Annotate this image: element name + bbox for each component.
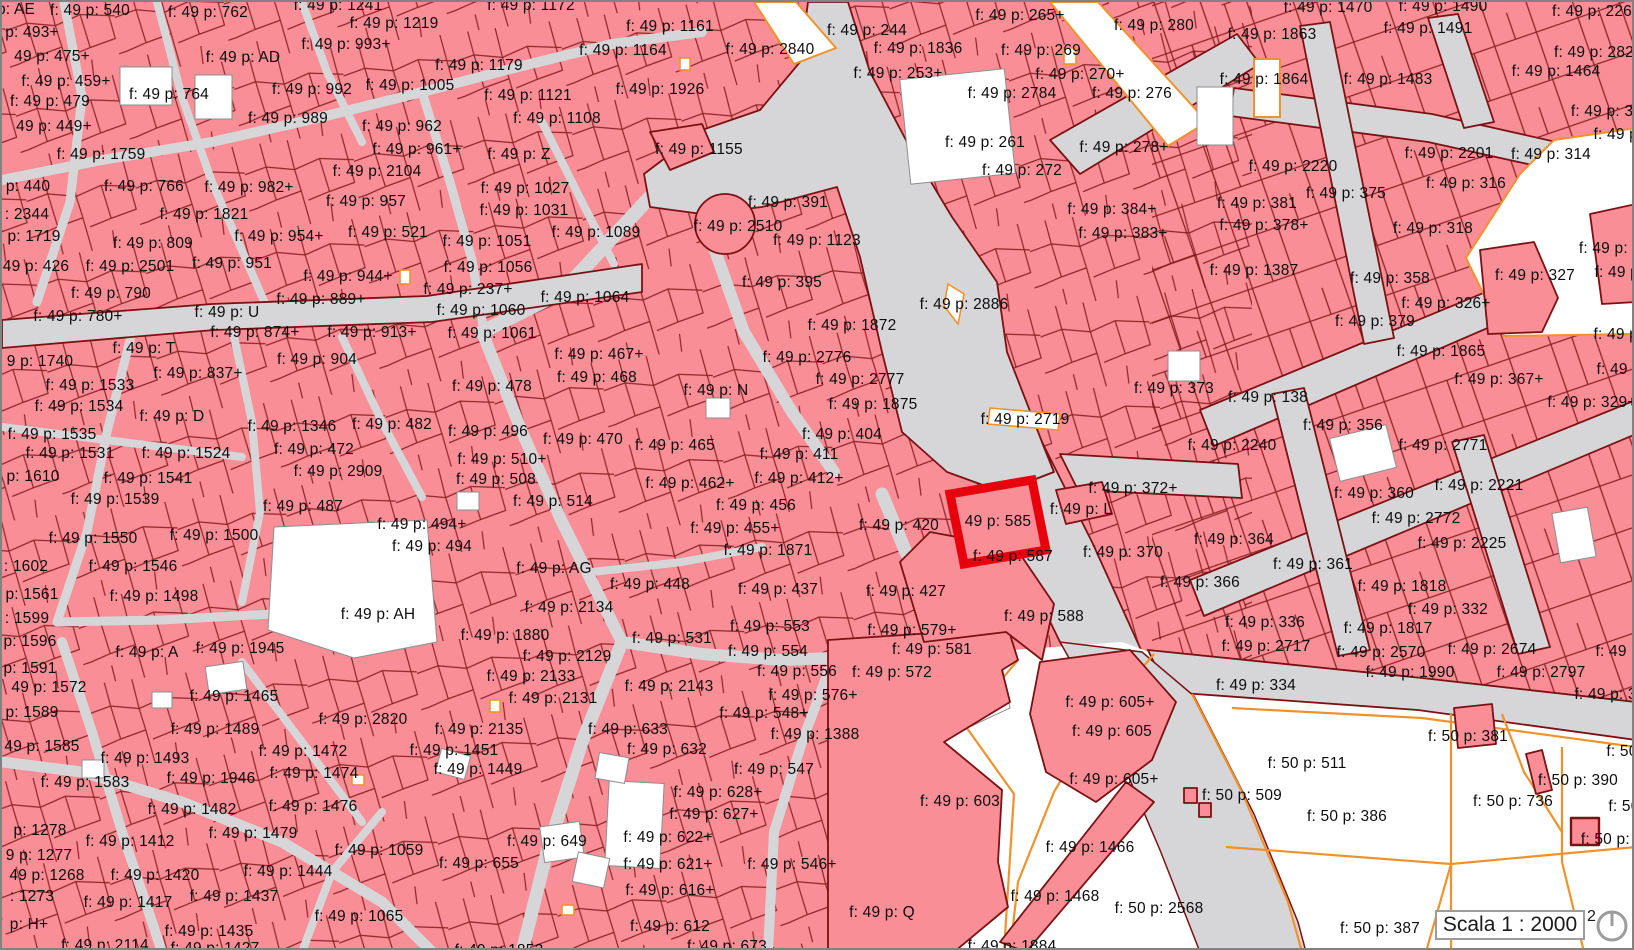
parcel-label: f: 49 p: 554: [728, 644, 808, 660]
parcel-label: f: 49 p: 1388: [771, 727, 860, 743]
parcel-label: f: 49 p: 1427: [171, 941, 260, 950]
parcel-label: f: 49 p: 237+: [423, 282, 512, 298]
parcel-label: f: 49 p: 316: [1426, 176, 1506, 192]
parcel-label: f: 49 p: 531: [632, 631, 712, 647]
parcel-label: f: 49 p: D: [140, 409, 205, 425]
parcel-label: f: 49 p: 1476: [269, 799, 358, 815]
clock-icon[interactable]: [1594, 907, 1630, 943]
parcel-label: f: 49 p: 1871: [724, 543, 813, 559]
parcel-label: f: 49 p: 395: [742, 275, 822, 291]
parcel-label: f: 49 p: 1123: [773, 233, 861, 249]
parcel-label: f: 49 p: 1490: [1399, 0, 1488, 15]
parcel-label: f: 49 p: 957: [326, 194, 406, 210]
parcel-label: f: 49 p: 1179: [435, 58, 523, 74]
parcel-label: f: 49 p: 1065: [315, 909, 404, 925]
parcel-label: f: 49 p: 2570: [1337, 645, 1426, 661]
parcel-label: f: 49 p: 269: [1001, 43, 1081, 59]
parcel-label: f: 49 p: 378+: [1219, 218, 1308, 234]
parcel-label: f: 49 p: 556: [757, 664, 837, 680]
parcel-label: f: 49 p: 2510: [694, 219, 783, 235]
parcel-label: f: 49 p: 547: [734, 762, 814, 778]
parcel-label: f: 49 p: 1531: [26, 446, 115, 462]
parcel-label: f: 49 p: 2143: [625, 679, 714, 695]
parcel-label: f: 49 p: AH: [341, 607, 416, 623]
parcel-label: f: 49 p: 1346: [248, 419, 337, 435]
parcel-label: f: 49 p: 1437: [190, 889, 279, 905]
parcel-label: f: 49 p: 1817: [1344, 621, 1433, 637]
parcel-label: f: 49 p: 1500: [170, 528, 259, 544]
labels-layer: p: AEf: 49 p: 540f: 49 p: 762f: 49 p: 12…: [2, 2, 1632, 948]
parcel-label: f: 49 p: 384+: [1067, 202, 1156, 218]
parcel-label: f: 49 p: 1241: [294, 0, 383, 14]
parcel-label: f: 49 p: 982+: [204, 180, 293, 196]
parcel-label: f: 49 p: 1056: [444, 260, 533, 276]
parcel-label: f: 49 p: 1219: [350, 16, 439, 32]
parcel-label: f: 49 p: 989: [248, 111, 328, 127]
parcel-label: f: 49 p: 327: [1495, 268, 1575, 284]
parcel-label: f: 49 p: 603: [920, 794, 1000, 810]
parcel-label: f: 49 p: 465: [635, 438, 715, 454]
parcel-label: f: 49 p: 326+: [1401, 296, 1490, 312]
parcel-label: f: 49 p: 372+: [1088, 481, 1177, 497]
parcel-label: f: 50 p: 381: [1428, 729, 1508, 745]
parcel-label: f: 49 p: 2131: [509, 691, 598, 707]
parcel-label: : 1602: [4, 559, 48, 575]
parcel-label: f: 49 p: 2909: [294, 464, 383, 480]
parcel-label: 49 p: 1268: [9, 868, 84, 884]
parcel-label: f: 49 p:: [1594, 327, 1634, 343]
parcel-label: f: 49 p: 622+: [623, 830, 712, 846]
parcel-label: f: 49 p: Z: [487, 147, 550, 163]
scale-label: Scala 1 : 2000: [1443, 913, 1577, 937]
parcel-label: f: 49 p: L: [1050, 502, 1112, 518]
parcel-label: f: 49 p: 1875: [829, 397, 918, 413]
parcel-label: p: 1561: [5, 587, 58, 603]
parcel-label: f: 49 p: 411: [760, 447, 839, 463]
parcel-label: f: 49 p: 1818: [1358, 579, 1447, 595]
parcel-label: f: 49 p: 1945: [196, 641, 285, 657]
parcel-label: f: 49 p: 633: [588, 722, 668, 738]
parcel-label: f: 49 p: 479: [10, 94, 90, 110]
parcel-label: f: 49 p: 482: [352, 417, 432, 433]
parcel-label: f: 49 p: 790: [71, 286, 151, 302]
parcel-label: f: 49 p: 2114: [61, 938, 149, 950]
parcel-label: f: 49 p: 1489: [171, 722, 260, 738]
parcel-label: 49 p: 1572: [11, 680, 86, 696]
parcel-label: f: 49 p: 1164: [579, 43, 667, 59]
parcel-label: f: 49 p: 2129: [523, 649, 612, 665]
parcel-label: 9 p: 1740: [7, 354, 73, 370]
parcel-label: f: 49 p: 1926: [616, 82, 705, 98]
parcel-label: p: AE: [0, 2, 35, 18]
parcel-label: f: 49 p: 1483: [1344, 72, 1433, 88]
parcel-label: f: 49 p: 992: [272, 82, 352, 98]
parcel-label: f: 49 p: 373: [1134, 381, 1214, 397]
parcel-label: f: 49 p: N: [684, 383, 749, 399]
parcel-label: f: 49 p: 437: [738, 582, 818, 598]
parcel-label: f: 49 p: 470: [543, 432, 623, 448]
parcel-label: f: 49 p: 2771: [1399, 438, 1488, 454]
parcel-label: f: 49 p: 226: [1552, 4, 1632, 20]
parcel-label: f: 49 p: 1089: [552, 225, 641, 241]
parcel-label: f: 49 p: 1466: [1046, 840, 1135, 856]
parcel-label: f: 49 p: 404: [802, 427, 882, 443]
parcel-label: f: 49 p: 1161: [626, 19, 714, 35]
parcel-label: f: 49 p: 370: [1083, 545, 1163, 561]
parcel-label: f: 49 p: 572: [852, 665, 932, 681]
parcel-label: f: 49 p: 762: [168, 5, 248, 21]
parcel-label: f: 49 p: 579+: [867, 623, 956, 639]
parcel-label: f: 49 p: 649: [507, 834, 587, 850]
parcel-label: f: 50 p: 386: [1307, 809, 1387, 825]
parcel-label: f: 50: [1606, 744, 1634, 760]
parcel-label: p: 1278: [13, 823, 66, 839]
parcel-label: f: 49 p: 951: [192, 256, 272, 272]
parcel-label: f: 49 p: 265+: [975, 8, 1064, 24]
parcel-label: f: 49 p: 2135: [435, 722, 524, 738]
parcel-label: f: 49 p: 34: [1574, 687, 1634, 703]
parcel-label: f: 49 p: 780+: [33, 309, 122, 325]
parcel-label: f: 49 p: 375: [1306, 186, 1386, 202]
parcel-label: f: 49 p: 1493: [101, 751, 190, 767]
parcel-label: f: 49 p: 2820: [319, 712, 408, 728]
parcel-label: f: 49 p: 381: [1217, 196, 1297, 212]
parcel-label: f: 49 p: 462+: [645, 476, 734, 492]
parcel-label: f: 49 p: 334: [1216, 678, 1296, 694]
parcel-label: 9 p: 1277: [6, 848, 72, 864]
parcel-label: f: 49 p: 2719: [981, 412, 1070, 428]
parcel-label: f: 50 p: 2568: [1115, 901, 1204, 917]
parcel-label: f: 49 p: 1482: [148, 802, 237, 818]
parcel-label: f: 50 p: 3: [1581, 832, 1634, 848]
parcel-label: f: 49 p: 766: [104, 179, 184, 195]
parcel-label: f: 49 p:: [1594, 127, 1634, 143]
parcel-label: f: 49 p: 336: [1225, 615, 1305, 631]
parcel-label: f: 50 p: 736: [1473, 794, 1553, 810]
parcel-label: f: 50 p: 511: [1268, 756, 1347, 772]
parcel-label: f: 49 p: 1946: [167, 771, 256, 787]
parcel-label: p: 1591: [3, 661, 56, 677]
parcel-label: f: 49 p: 1534: [35, 399, 124, 415]
parcel-label: p: 1719: [7, 229, 60, 245]
parcel-label: f: 49 p: 944+: [303, 269, 392, 285]
parcel-label: f: 49 p: 318: [1393, 221, 1473, 237]
parcel-label: f: 49 p: 1864: [1220, 72, 1309, 88]
parcel-label: p: 1610: [6, 469, 59, 485]
parcel-label: f: 49 p: 455+: [690, 521, 779, 537]
parcel-label: f: 49 p: 379: [1335, 314, 1415, 330]
parcel-label: f: 49 p: 1444: [244, 864, 333, 880]
parcel-label: f: 49 p: 1872: [808, 318, 897, 334]
parcel-label: f: 49 p: Q: [849, 905, 915, 921]
parcel-label: f: 49 p: 1417: [84, 895, 173, 911]
parcel-label: p: 493+: [5, 25, 59, 41]
parcel-label: f: 49 p: 616+: [625, 883, 714, 899]
parcel-label: f: 49 p: 1853: [455, 943, 544, 950]
parcel-label: f: 49 p: 2840: [726, 42, 815, 58]
parcel-label: f: 49 p: 1491: [1384, 21, 1473, 37]
parcel-label: f: 49 p: 1990: [1366, 665, 1455, 681]
parcel-label: f: 49 p: 1121: [484, 88, 572, 104]
parcel-label: f: 49 p: 456: [716, 498, 796, 514]
parcel-label: f: 49 p: 3: [1571, 104, 1633, 120]
parcel-label: f: 49 p: 361: [1273, 557, 1353, 573]
parcel-label: f: 49 p: 280: [1114, 18, 1194, 34]
parcel-label: f: 49 p: 1464: [1512, 64, 1601, 80]
parcel-label: 49 p: 426: [3, 259, 69, 275]
parcel-label: f: 49 p: 1821: [160, 207, 249, 223]
parcel-label: f: 49 p: 494: [392, 539, 472, 555]
parcel-label: p: H+: [10, 917, 48, 933]
parcel-label: f: 49 p: 278+: [1079, 140, 1168, 156]
parcel-label: f: 49 p: 412+: [754, 471, 843, 487]
parcel-label: 49 p: 449+: [16, 119, 92, 135]
parcel-label: f: 49 p: 612: [630, 919, 710, 935]
parcel-label: f: 50 p: 509: [1202, 788, 1282, 804]
parcel-label: : 1273: [10, 889, 54, 905]
parcel-label: f: 49 p: 358: [1350, 271, 1430, 287]
parcel-label: f: 49 p: 1060: [437, 303, 526, 319]
parcel-label: f: 49 p: 2225: [1418, 536, 1507, 552]
parcel-label: f: 49 p: A: [115, 645, 178, 661]
parcel-label: f: 49 p: 961+: [372, 142, 461, 158]
parcel-label: f: 49 p: 605: [1072, 724, 1152, 740]
parcel-label: f: 49 p: 2777: [816, 372, 905, 388]
parcel-label: f: 49 p: 1535: [8, 427, 97, 443]
parcel-label: f: 49 p: 874+: [210, 325, 299, 341]
parcel-label: f: 49 p: 2886: [920, 297, 1009, 313]
parcel-label: f: 49 p: 1061: [448, 326, 537, 342]
parcel-label: f: 49 p: 282: [1554, 45, 1634, 61]
parcel-label: f: 49 p: 467+: [554, 347, 643, 363]
parcel-label: f: 49 p: 764: [129, 87, 209, 103]
parcel-label: f: 49 p: 521: [348, 225, 428, 241]
parcel-label: f: 49 p: 576+: [768, 688, 857, 704]
parcel-label: f: 49 p: 253+: [853, 66, 942, 82]
parcel-label: f: 49 p: 605+: [1069, 772, 1158, 788]
parcel-label: f: 49 p: 2201: [1405, 146, 1494, 162]
parcel-label: 49 p: 475+: [14, 49, 90, 65]
parcel-label: f: 49 p: 1524: [142, 446, 231, 462]
parcel-label: f: 49 p: AD: [206, 50, 281, 66]
parcel-label: f: 49 p: 1064: [541, 290, 630, 306]
parcel-label: f: 49 p: 2674: [1448, 642, 1537, 658]
parcel-label: f: 49 p: 1474: [270, 766, 359, 782]
parcel-label: f: 49 p: 1546: [89, 559, 178, 575]
parcel-label: f: 49 p: 1583: [41, 775, 130, 791]
parcel-label: f: 49 p: U: [195, 305, 260, 321]
parcel-label: f: 49 p: 962: [362, 119, 442, 135]
parcel-label: f: 49 p: 605+: [1065, 695, 1154, 711]
parcel-label: f: 49 p: 2104: [333, 164, 422, 180]
parcel-label: f: 49 p: 809: [113, 236, 193, 252]
parcel-label: f: 49 p: 1472: [259, 744, 348, 760]
map-viewport[interactable]: p: AEf: 49 p: 540f: 49 p: 762f: 49 p: 12…: [0, 0, 1634, 950]
parcel-label: f: 49 p: 1479: [209, 826, 298, 842]
parcel-label: f: 49 p: T: [113, 341, 176, 357]
parcel-label: f: 49 p: 548+: [719, 706, 808, 722]
parcel-label: f: 49 p: 366: [1160, 575, 1240, 591]
parcel-label: f: 49 p: 1541: [104, 471, 193, 487]
parcel-label: f: 50 p: 387: [1340, 921, 1420, 937]
parcel-label: f: 49 p: 1863: [1228, 27, 1317, 43]
parcel-label: f: 49 p: 2784: [968, 86, 1057, 102]
parcel-label: f: 49 p: 1155: [655, 142, 743, 158]
parcel-label: f: 49 p: 2501: [86, 259, 175, 275]
parcel-label: f: 49 p: 1539: [71, 492, 160, 508]
parcel-label: f: 49 p: 427: [866, 584, 946, 600]
parcel-label: f: 49 p: 2133: [487, 669, 576, 685]
parcel-label: f: 49 p: 514: [513, 494, 593, 510]
parcel-label: f: 49 p: 1470: [1284, 0, 1373, 16]
parcel-label: f: 49 p: 904: [277, 352, 357, 368]
parcel-label: f: 49 p: AG: [516, 561, 591, 577]
parcel-label: f: 49 p: 496: [448, 424, 528, 440]
parcel-label: f: 49 p: 420: [859, 518, 939, 534]
parcel-label: f: 49 p: 367+: [1454, 372, 1543, 388]
parcel-label: f: 49 p: 356: [1303, 418, 1383, 434]
parcel-label: f: 49 p: 468: [557, 370, 637, 386]
parcel-label: f: 49 p: 364: [1194, 532, 1274, 548]
parcel-label: f: 49 p: 332: [1408, 602, 1488, 618]
parcel-label: : 2344: [5, 207, 49, 223]
parcel-label: f: 49 p: 581: [892, 642, 972, 658]
parcel-label: f: 49 p: 1108: [513, 111, 601, 127]
parcel-label: p: 1596: [3, 634, 56, 650]
parcel-label: f: 49 p: 1435: [165, 924, 254, 940]
parcel-label: f: 49 p: 1412: [86, 834, 175, 850]
parcel-label: f: 49 p: 627+: [669, 807, 758, 823]
parcel-label: f: 49 p: 993+: [301, 37, 390, 53]
parcel-label: f: 49 p: 1449: [434, 762, 523, 778]
parcel-label: f: 49 p: 2717: [1222, 639, 1311, 655]
parcel-label: f: 49 p: 2240: [1188, 438, 1277, 454]
parcel-label: f: 49 p: 1865: [1397, 344, 1486, 360]
parcel-label: f: 49 p: 1027: [481, 181, 570, 197]
parcel-label: f: 49 p: 1884: [968, 939, 1057, 950]
parcel-label: f: 49 p: 553: [730, 619, 810, 635]
parcel-label: f: 49 p: 1051: [443, 234, 532, 250]
parcel-label: f: 49 p: 1880: [461, 628, 550, 644]
parcel-label: f: 49 p: 1005: [366, 78, 455, 94]
parcel-label: f: 49 p: 1468: [1011, 889, 1100, 905]
parcel-label: f: 49 p: 329+: [1547, 395, 1634, 411]
parcel-label: f: 49 p: 837+: [153, 366, 242, 382]
parcel-label: 49 p: 1585: [4, 739, 79, 755]
parcel-label: f: 49 p: 655: [439, 856, 519, 872]
parcel-label: f: 49 p: 472: [274, 442, 354, 458]
parcel-label: f: 49 p: 2776: [763, 350, 852, 366]
parcel-label: f: 49 p: 628+: [673, 785, 762, 801]
parcel-label: f: 49 p: 588: [1004, 609, 1084, 625]
parcel-label: p: 440: [6, 179, 50, 195]
parcel-label: f: 49 p:: [1596, 644, 1634, 660]
parcel-label: f: 49 p: 1387: [1210, 263, 1299, 279]
parcel-label: f: 49 p: 448: [610, 577, 690, 593]
parcel-label: f: 49 p: 1059: [335, 843, 424, 859]
parcel-label: f: 49 p: 276: [1092, 86, 1172, 102]
parcel-label: f: 49 p: 1759: [57, 147, 146, 163]
parcel-label: f: 49 p: 459+: [21, 74, 110, 90]
parcel-label: f: 49 p: 478: [452, 379, 532, 395]
parcel-label: f: 49 p: 360: [1334, 486, 1414, 502]
parcel-label: f: 49 p: 383+: [1078, 226, 1167, 242]
parcel-label: f: 49 p: 2220: [1249, 159, 1338, 175]
parcel-label: f: 49 p: 2134: [525, 600, 614, 616]
parcel-label: p: 1589: [5, 705, 58, 721]
parcel-label: f: 49 p: 1533: [46, 378, 135, 394]
parcel-label: f: 49 p: 546+: [747, 857, 836, 873]
parcel-label: f: 49 p: 270+: [1035, 67, 1124, 83]
parcel-label: f: 49 p: 138: [1228, 390, 1308, 406]
parcel-label: f: 49 p: 510+: [457, 452, 546, 468]
scale-indicator[interactable]: Scala 1 : 2000: [1435, 910, 1585, 940]
parcel-label: f: 49 p: 244: [827, 23, 907, 39]
parcel-label: f: 49 p: 913+: [327, 325, 416, 341]
parcel-label: f: 49 p: 2221: [1435, 478, 1524, 494]
parcel-label: f: 49 p: 1836: [874, 41, 963, 57]
parcel-label: f: 49 p: 508: [456, 472, 536, 488]
parcel-label: f: 49 p: 1498: [110, 589, 199, 605]
parcel-label: f: 49 p: 261: [945, 135, 1025, 151]
parcel-label: f: 49 p:: [1597, 362, 1634, 378]
parcel-label: f: 49 p: 1465: [190, 689, 279, 705]
parcel-label: f: 49 p: 889+: [276, 292, 365, 308]
parcel-label: 49 p: 585: [965, 514, 1031, 530]
parcel-label: f: 49 p: 632: [627, 742, 707, 758]
parcel-label: f: 49 p: 1031: [480, 203, 569, 219]
parcel-label: f: 49 p: 2797: [1497, 665, 1586, 681]
parcel-label: f: 50: [1608, 799, 1634, 815]
parcel-label: f: 49 p: 1451: [410, 743, 499, 759]
parcel-label: f: 50 p: 390: [1538, 773, 1618, 789]
parcel-label: f: 49 p:: [1595, 265, 1634, 281]
parcel-label: f: 49 p: 487: [263, 499, 343, 515]
parcel-label: f: 49 p: 1420: [111, 868, 200, 884]
parcel-label: f: 49 p: 1172: [487, 0, 575, 14]
parcel-label: f: 49 p: 314: [1511, 147, 1591, 163]
parcel-label: f: 49 p: 1550: [49, 531, 138, 547]
parcel-label: f: 49 p: 587: [973, 549, 1053, 565]
parcel-label: : 1599: [5, 611, 49, 627]
parcel-label: f: 49 p: 621+: [623, 857, 712, 873]
parcel-label: f: 49 p: 3: [1579, 241, 1634, 257]
parcel-label: f: 49 p: 954+: [234, 229, 323, 245]
parcel-label: f: 49 p: 673: [687, 939, 767, 950]
parcel-label: f: 49 p: 2772: [1372, 511, 1461, 527]
parcel-label: f: 49 p: 391: [748, 195, 828, 211]
parcel-label: f: 49 p: 494+: [377, 517, 466, 533]
parcel-label: f: 49 p: 540: [50, 3, 130, 19]
parcel-label: f: 49 p: 272: [982, 163, 1062, 179]
